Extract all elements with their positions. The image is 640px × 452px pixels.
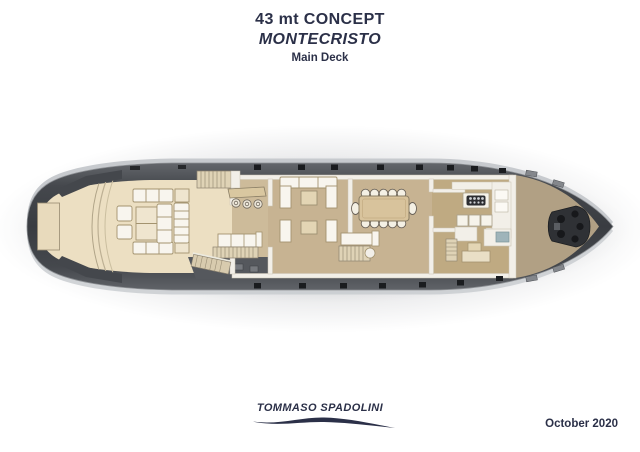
date-label: October 2020 bbox=[545, 418, 618, 430]
galley-appliances bbox=[457, 215, 492, 226]
aft-stairs-up bbox=[197, 171, 240, 188]
logo-wave-swoosh bbox=[248, 414, 398, 430]
stern-hatch bbox=[38, 203, 60, 250]
page: { "header": { "title": "43 mt CONCEPT", … bbox=[0, 0, 640, 452]
salon-ottoman bbox=[301, 191, 317, 205]
salon-ottoman-2 bbox=[301, 221, 317, 234]
cooktop bbox=[467, 196, 486, 206]
interior-stairs bbox=[339, 231, 379, 261]
galley-stairs bbox=[446, 239, 457, 261]
deck-plan bbox=[0, 0, 640, 452]
anchor-windlass bbox=[548, 206, 590, 247]
sink bbox=[496, 232, 509, 242]
designer-logo-text: TOMMASO SPADOLINI bbox=[0, 402, 640, 414]
day-head bbox=[484, 229, 511, 246]
bar-stools bbox=[232, 199, 262, 208]
dining-table bbox=[359, 196, 409, 221]
